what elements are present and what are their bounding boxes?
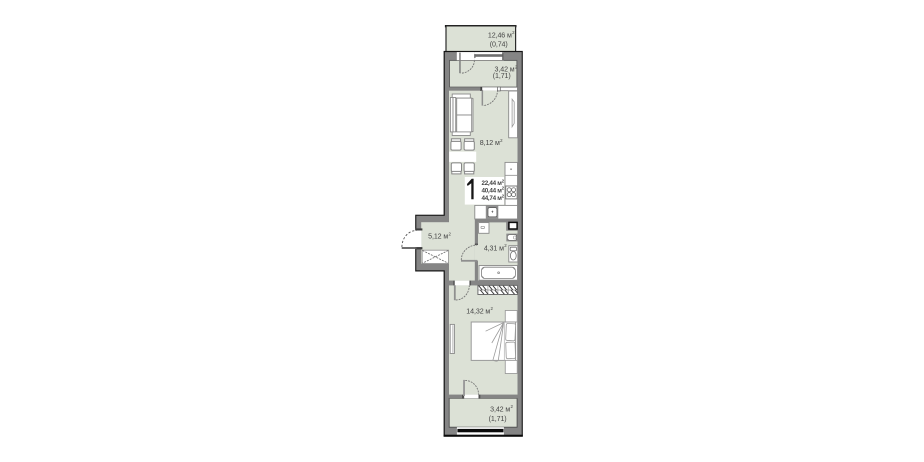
svg-text:44,74 м: 44,74 м	[482, 195, 503, 202]
svg-text:3,42 м: 3,42 м	[490, 405, 510, 413]
svg-text:(1,71): (1,71)	[489, 415, 507, 423]
svg-text:14,32 м: 14,32 м	[466, 308, 490, 316]
svg-text:(0,74): (0,74)	[490, 41, 508, 49]
svg-text:40,44 м: 40,44 м	[482, 187, 503, 194]
svg-text:5,12 м: 5,12 м	[428, 233, 448, 241]
svg-text:8,12 м: 8,12 м	[480, 139, 500, 147]
svg-text:(1,71): (1,71)	[493, 72, 511, 80]
svg-text:22,44 м: 22,44 м	[482, 180, 503, 187]
svg-text:4,31 м: 4,31 м	[484, 244, 504, 252]
svg-text:12,46 м: 12,46 м	[488, 31, 512, 39]
